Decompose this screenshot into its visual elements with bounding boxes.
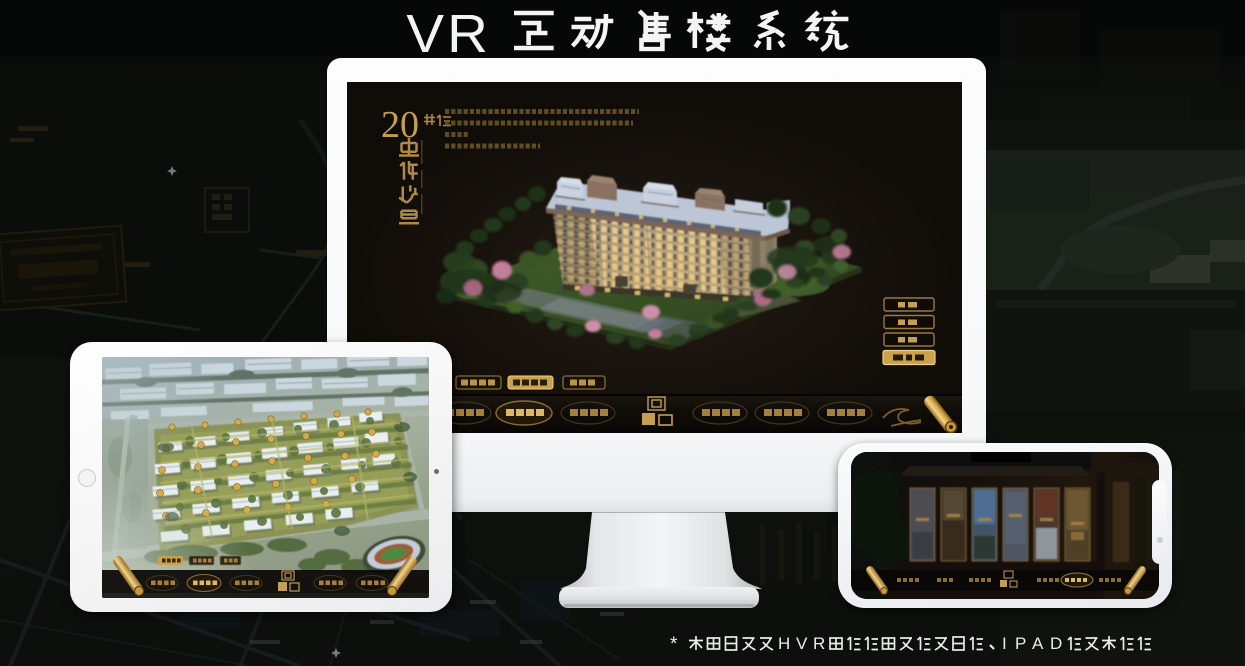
svg-text:*: *	[670, 634, 678, 655]
svg-text:VR: VR	[406, 4, 491, 58]
svg-text:I: I	[1002, 634, 1007, 653]
svg-text:R: R	[813, 634, 825, 653]
svg-text:V: V	[796, 634, 808, 653]
svg-text:D: D	[1050, 634, 1062, 653]
svg-text:P: P	[1015, 634, 1026, 653]
svg-text:H: H	[778, 634, 790, 653]
svg-text:A: A	[1032, 634, 1044, 653]
svg-text:20: 20	[381, 104, 419, 146]
